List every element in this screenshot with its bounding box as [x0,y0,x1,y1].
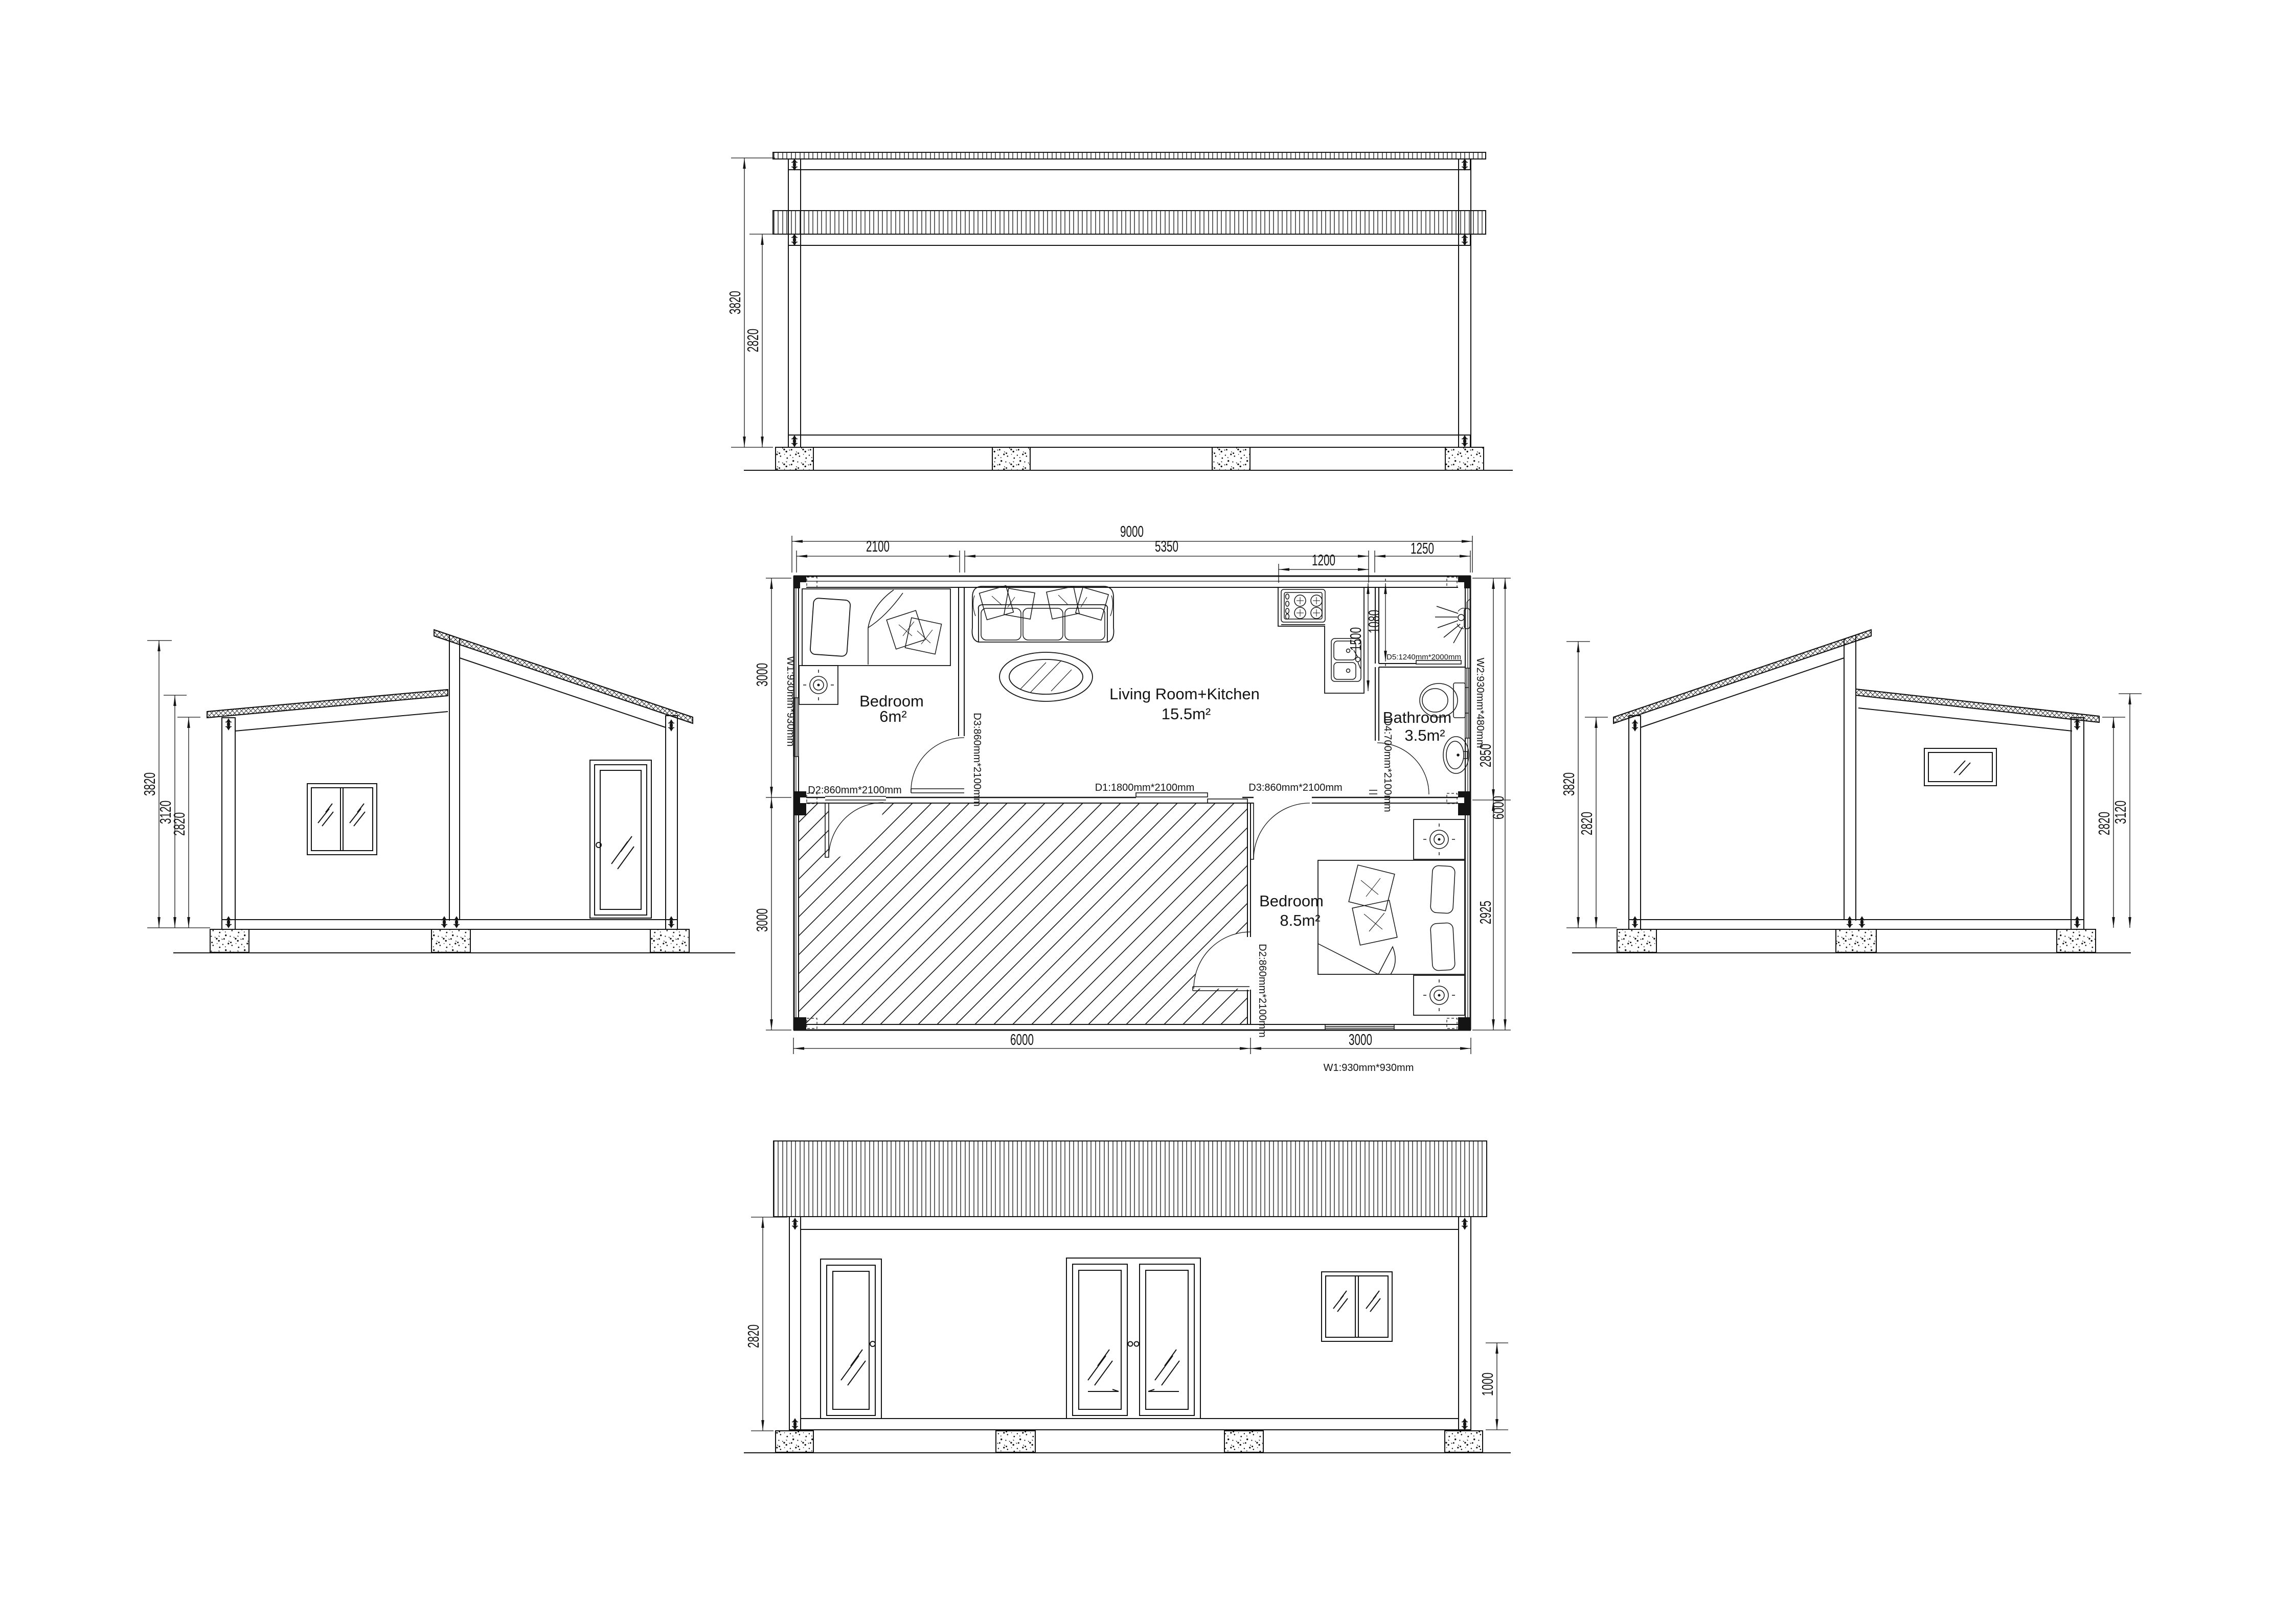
svg-text:D2:860mm*2100mm: D2:860mm*2100mm [1257,944,1268,1037]
svg-text:3820: 3820 [141,772,158,796]
svg-text:15.5m²: 15.5m² [1162,705,1211,723]
svg-text:D5:1240mm*2000mm: D5:1240mm*2000mm [1386,653,1461,661]
svg-text:2820: 2820 [170,812,188,836]
svg-text:Living Room+Kitchen: Living Room+Kitchen [1109,685,1260,703]
svg-text:3000: 3000 [753,663,771,687]
svg-text:W1:930mm*930mm: W1:930mm*930mm [785,656,796,747]
svg-text:6m²: 6m² [879,707,906,725]
svg-text:2100: 2100 [866,537,890,555]
svg-text:Bedroom: Bedroom [1259,892,1324,910]
svg-text:1000: 1000 [1479,1373,1496,1396]
svg-text:2925: 2925 [1476,901,1494,924]
svg-text:D3:860mm*2100mm: D3:860mm*2100mm [1248,782,1342,793]
svg-text:2820: 2820 [2095,812,2113,835]
svg-text:3000: 3000 [1349,1031,1372,1048]
svg-text:9000: 9000 [1120,522,1144,540]
svg-text:1250: 1250 [1411,539,1434,557]
svg-text:3820: 3820 [726,291,744,314]
svg-text:6000: 6000 [1010,1031,1034,1048]
svg-text:W1:930mm*930mm: W1:930mm*930mm [1324,1062,1414,1073]
svg-text:1080: 1080 [1365,610,1383,633]
svg-text:D2:860mm*2100mm: D2:860mm*2100mm [808,785,901,796]
svg-text:6000: 6000 [1489,796,1507,819]
svg-text:2820: 2820 [1578,812,1596,835]
svg-text:1500: 1500 [1347,627,1365,651]
svg-text:D4:700mm*2100mm: D4:700mm*2100mm [1382,718,1393,812]
svg-text:D1:1800mm*2100mm: D1:1800mm*2100mm [1095,782,1195,793]
svg-text:W2:930mm*480mm: W2:930mm*480mm [1474,658,1486,748]
svg-text:2820: 2820 [744,329,762,352]
svg-text:3.5m²: 3.5m² [1404,726,1445,744]
svg-text:2820: 2820 [744,1324,762,1348]
svg-text:5350: 5350 [1155,537,1178,555]
svg-text:3820: 3820 [1560,772,1578,796]
svg-text:3000: 3000 [753,908,771,932]
svg-text:3120: 3120 [2111,801,2129,824]
svg-text:1200: 1200 [1312,551,1335,569]
svg-text:D3:860mm*2100mm: D3:860mm*2100mm [971,713,983,806]
svg-text:8.5m²: 8.5m² [1280,911,1320,929]
